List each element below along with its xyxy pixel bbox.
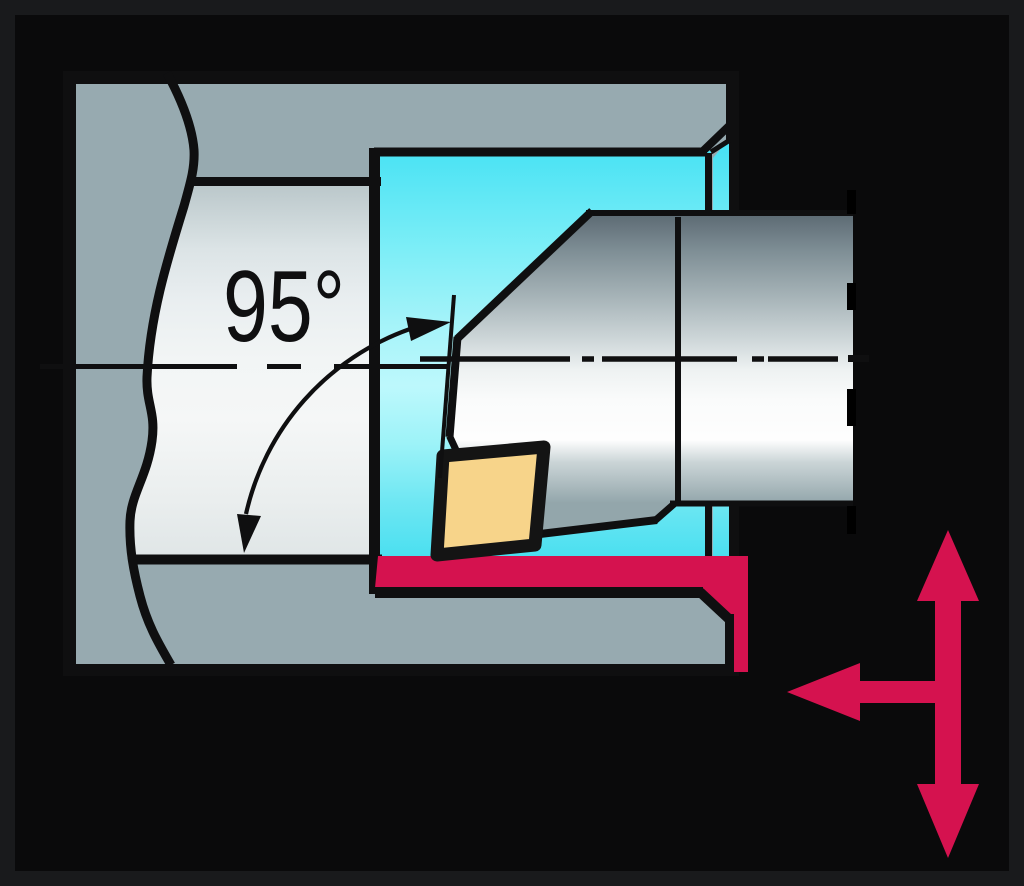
svg-text:95°: 95° [223, 251, 345, 363]
